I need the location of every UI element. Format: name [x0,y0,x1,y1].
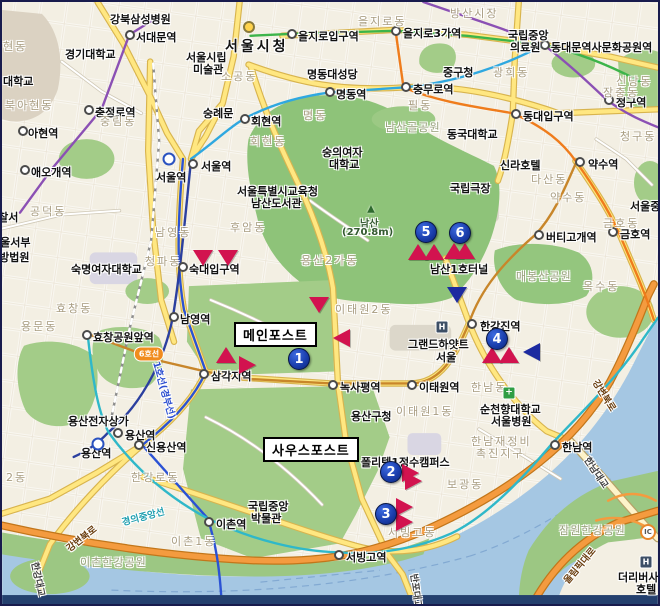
label-park: 이촌한강공원 [80,554,147,570]
label-station: 회현역 [251,113,281,129]
label-district: 필동 [408,97,432,113]
label-district: 이태원2동 [335,301,392,317]
label-station: 애오개역 [31,164,71,180]
hotel-icon: H [640,556,653,569]
marker-triangle-red-down[interactable] [309,297,329,313]
label-station: 서울역 [201,158,231,174]
label-station: 아현역 [28,125,58,141]
label-station: 동대문역사문화공원역 [551,39,652,55]
label-station: 이태원역 [419,379,459,395]
label-district: 현동 [3,38,27,54]
label-poi: 호텔 [636,581,656,597]
label-district: 소공동 [221,68,257,84]
label-district: 청구동 [620,128,656,144]
station-dot [467,319,477,329]
label-station: 동대입구역 [523,108,574,124]
label-district: 용문동 [21,318,57,334]
station-dot [20,165,30,175]
marker-number-5[interactable]: 5 [415,221,437,243]
label-station: 남영역 [180,311,210,327]
marker-triangle-red-up[interactable] [216,347,236,363]
label-district: 옥수동 [583,278,619,294]
label-district: 후암동 [230,219,266,235]
label-station: 신용산역 [146,439,186,455]
label-city-hall: 서울시청 [225,36,289,56]
station-dot [188,159,198,169]
label-district: 을지로동 [358,13,406,29]
label-poi: 용산구청 [351,408,391,424]
label-poi: 숙명여자대학교 [71,261,142,277]
label-district: 촉진지구 [476,445,524,461]
label-poi: 경찰서 [0,209,18,225]
marker-number-1[interactable]: 1 [288,348,310,370]
label-station: 서빙고역 [346,549,386,565]
label-poi: 명동대성당 [307,66,358,82]
label-district: 중림동 [100,113,136,129]
label-poi: 미술관 [193,61,223,77]
label-station: 을지로입구역 [298,28,359,44]
label-park: 매봉산공원 [516,268,572,284]
station-dot [82,330,92,340]
label-station: 을지로3가역 [403,25,461,41]
station-dot [407,380,417,390]
label-district: 이촌1동 [171,533,216,549]
label-district: 북아현동 [5,97,53,113]
label-poi: 강북삼성병원 [110,11,171,27]
label-mountain: (270.8m) [342,227,393,238]
label-district: 용산2가동 [301,252,358,268]
station-dot [534,230,544,240]
label-poi: 용산전자상가 [68,413,129,429]
badge-line6: 6호선 [134,347,164,362]
marker-triangle-red-up[interactable] [424,244,444,260]
label-district: 한강로동 [131,469,179,485]
marker-triangle-red-up[interactable] [499,347,519,363]
station-dot [287,29,297,39]
label-station: 명동역 [336,86,366,102]
station-dot [550,440,560,450]
label-station: 충무로역 [413,81,453,97]
station-dot [199,369,209,379]
label-poi: 서울 [436,349,456,365]
label-station: 녹사평역 [340,379,380,395]
label-poi: 박물관 [251,510,281,526]
station-dot [511,109,521,119]
label-district: 공덕동 [30,203,66,219]
label-district: 보광동 [447,476,483,492]
label-district: 다산동 [531,171,567,187]
station-dot [113,428,123,438]
label-poi: 동국대학교 [447,126,498,142]
label-poi: 서울중 [630,198,660,214]
label-poi: 지방법원 [0,249,29,265]
map-canvas[interactable]: 서울시청서대문역충정로역아현역애오개역을지로입구역을지로3가역동대문역사문화공원… [0,0,660,606]
label-poi: 남산도서관 [251,195,302,211]
marker-number-6[interactable]: 6 [449,222,471,244]
station-dot [169,312,179,322]
label-district: 금호동 [603,215,639,231]
station-dot [134,440,144,450]
label-district: 명동 [303,107,327,123]
label-poi: 국립극장 [450,180,490,196]
hotel-icon: H [436,321,449,334]
marker-triangle-blue-left[interactable] [523,343,540,361]
label-district: 청파동 [145,253,181,269]
label-poi: 경기대학교 [65,46,116,62]
label-station: 버티고개역 [546,229,597,245]
label-district: 약수동 [550,189,586,205]
station-dot [401,82,411,92]
label-poi: 서울서부 [0,234,30,250]
marker-triangle-red-down[interactable] [218,250,238,266]
marker-triangle-red-right[interactable] [396,513,413,531]
label-poi: 숭례문 [203,105,233,121]
marker-triangle-red-down[interactable] [193,250,213,266]
callout-main-post: 메인포스트 [234,322,317,347]
label-station: 서대문역 [136,29,176,45]
hospital-icon: + [503,387,516,400]
label-district: 방산시장 [450,5,498,21]
marker-triangle-red-right[interactable] [405,472,422,490]
marker-triangle-red-right[interactable] [239,356,256,374]
label-station: 약수역 [588,156,618,172]
rail-station-icon [163,153,176,166]
marker-triangle-red-up[interactable] [455,243,475,259]
marker-triangle-red-left[interactable] [333,329,350,347]
label-station: 서울역 [156,169,186,185]
station-dot [328,380,338,390]
marker-number-2[interactable]: 2 [380,461,402,483]
label-poi: 중구청 [443,64,473,80]
station-dot [18,126,28,136]
rail-station-icon [92,438,105,451]
label-poi: 서울병원 [491,413,531,429]
marker-triangle-blue-down[interactable] [447,287,467,303]
label-station: 한남역 [562,439,592,455]
label-district: 2동 [6,469,27,485]
station-dot [204,517,214,527]
label-poi: 의료원 [510,39,540,55]
label-district: 신당동 [616,73,652,89]
station-dot [125,30,135,40]
station-dot [575,157,585,167]
label-park: 남산골공원 [385,119,441,135]
interchange-icon: IC [640,524,656,540]
station-dot [334,550,344,560]
marker-number-4[interactable]: 4 [486,328,508,350]
mountain-peak-icon: ▲ [367,204,375,215]
label-district: 남영동 [155,224,191,240]
label-district: 광희동 [493,64,529,80]
label-poi: 대학교 [3,73,33,89]
station-dot [325,87,335,97]
station-dot [84,105,94,115]
label-poi: 대학교 [329,156,359,172]
label-station: 효창공원앞역 [93,329,154,345]
label-park: 잠원한강공원 [559,522,626,538]
label-poi: 남산1호터널 [430,261,488,277]
label-district: 회현동 [250,133,286,149]
callout-south-post: 사우스포스트 [263,437,359,462]
city-hall-icon [243,21,255,33]
label-district: 이태원1동 [396,403,453,419]
station-dot [240,114,250,124]
label-district: 효창동 [56,300,92,316]
marker-number-3[interactable]: 3 [375,503,397,525]
label-station: 이촌역 [216,516,246,532]
